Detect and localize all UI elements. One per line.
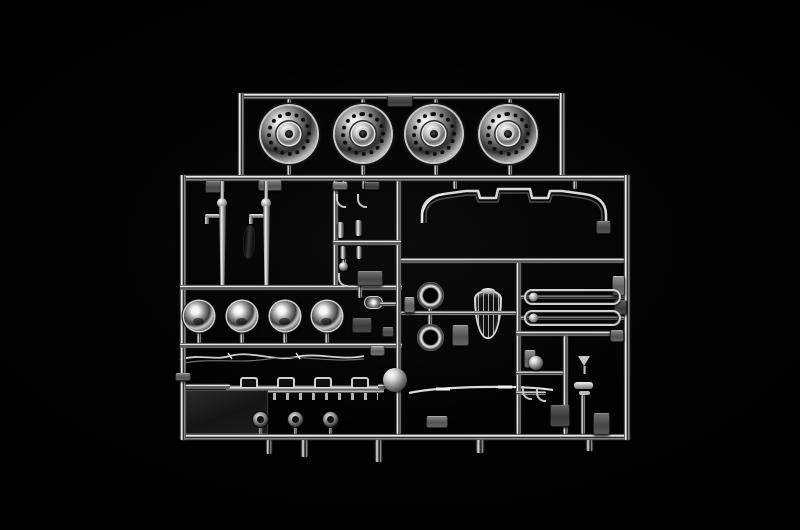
sphere-part	[529, 356, 543, 370]
molding-tab	[357, 271, 383, 286]
molding-tab	[387, 96, 413, 107]
wheel-rim-part	[335, 106, 391, 162]
oval-frame-part	[524, 289, 621, 305]
sprue-gate-stub	[301, 440, 308, 457]
sprue-runner	[559, 93, 565, 179]
wiper-arm-part	[178, 347, 366, 367]
dark-blade-part	[242, 225, 256, 260]
cylinder-part	[356, 246, 362, 259]
exhaust-side-arm	[205, 214, 220, 218]
headlight-part	[184, 301, 214, 331]
hook-bracket-part	[522, 386, 532, 400]
wheel-rim-part	[480, 106, 536, 162]
sprue-runner	[573, 181, 577, 189]
wheel-rim-part	[261, 106, 317, 162]
chrome-ring-part	[417, 324, 444, 351]
molding-tab	[404, 297, 415, 313]
sprue-runner	[238, 93, 244, 179]
sprue-gate-stub	[476, 440, 484, 453]
exhaust-stack-part	[212, 181, 234, 285]
molding-tab	[593, 413, 610, 435]
sprue-runner	[333, 240, 401, 245]
exhaust-pipe	[218, 206, 227, 285]
bumper-part	[414, 181, 614, 226]
funnel-stem	[583, 366, 586, 374]
sprue-runner	[180, 434, 630, 440]
cylinder-part	[355, 220, 362, 236]
sprue-runner	[401, 311, 516, 315]
lamp-lens-part	[253, 412, 268, 427]
molding-tab	[596, 221, 611, 234]
headlight-part	[270, 301, 300, 331]
photo-stage	[0, 0, 800, 530]
molding-tab	[370, 346, 385, 356]
sprue-runner	[516, 331, 624, 336]
molding-tab	[550, 405, 570, 427]
light-bar-bracket	[314, 377, 332, 387]
chrome-ring-part	[417, 282, 444, 309]
molding-tab	[352, 318, 372, 333]
headlight-part	[312, 301, 342, 331]
sprue-runner	[396, 181, 401, 434]
exhaust-side-arm	[249, 214, 264, 218]
headlight-part	[227, 301, 257, 331]
sprue-runner	[453, 181, 457, 189]
molding-tab	[175, 373, 191, 381]
hook-bracket-part	[536, 388, 546, 402]
sprue-runner	[380, 302, 396, 306]
sprue-runner	[358, 285, 362, 298]
cylinder-part	[340, 246, 346, 259]
molding-tab	[364, 182, 380, 190]
sprue-runner	[516, 371, 563, 375]
sprue-runner	[401, 258, 624, 263]
exhaust-stack-part	[256, 181, 278, 285]
air-horn-part	[574, 382, 593, 389]
molding-tab	[610, 330, 624, 342]
sprue-runner	[581, 395, 585, 434]
molding-tab	[332, 182, 348, 190]
sprue-runner	[186, 384, 230, 389]
lamp-lens-part	[288, 412, 303, 427]
light-bar-bracket	[277, 377, 295, 387]
oval-frame-part	[524, 310, 621, 326]
hook-bracket-part	[357, 194, 367, 208]
sprue-runner	[180, 175, 630, 181]
sphere-part	[339, 262, 348, 271]
sprue-runner	[516, 263, 521, 434]
chrome-sprue	[0, 0, 800, 530]
flat-plate-part	[182, 390, 268, 434]
molding-tab	[382, 327, 394, 337]
sprue-runner	[180, 343, 402, 348]
sprue-gate-stub	[375, 440, 382, 462]
light-bar-bracket	[351, 377, 369, 387]
sphere-part	[383, 368, 407, 392]
sprue-gate-stub	[266, 440, 272, 454]
molding-tab	[452, 325, 469, 346]
molding-tab	[426, 416, 448, 428]
wheel-rim-part	[406, 106, 462, 162]
air-horn-flange	[579, 391, 590, 395]
funnel-part	[578, 356, 590, 366]
sprue-gate-stub	[586, 440, 593, 451]
light-bar-bracket	[240, 377, 258, 387]
exhaust-pipe	[262, 206, 271, 285]
cylinder-part	[337, 222, 344, 238]
lamp-lens-part	[323, 412, 338, 427]
